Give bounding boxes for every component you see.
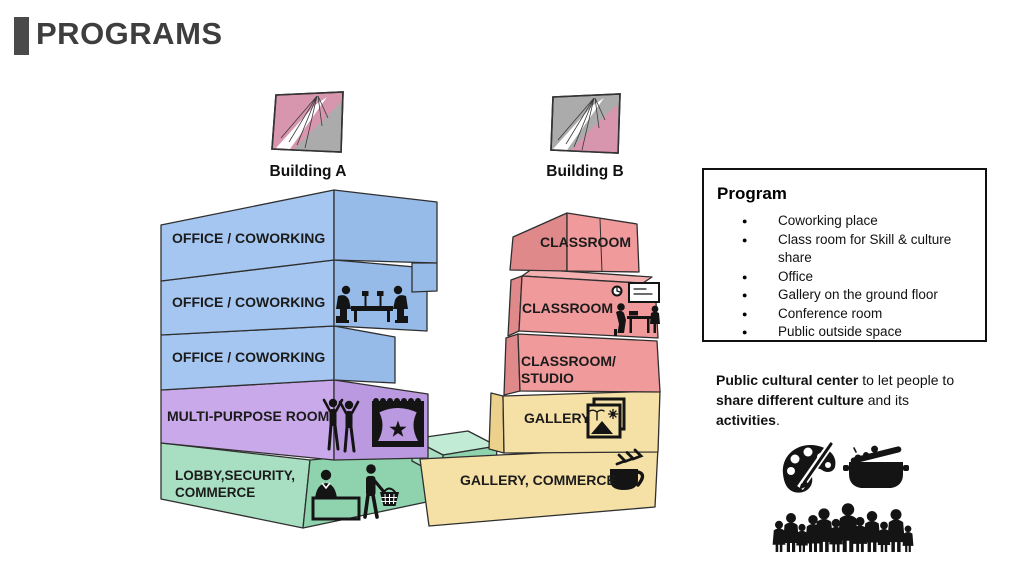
floor-label: OFFICE / COWORKING — [172, 349, 325, 365]
floor-label: LOBBY,SECURITY, — [175, 468, 295, 483]
list-item: ●Conference room — [742, 305, 977, 324]
bullet-icon: ● — [742, 268, 778, 287]
bullet-icon: ● — [742, 212, 778, 231]
stage-curtain-icon — [372, 398, 424, 447]
floor-label: OFFICE / COWORKING — [172, 294, 325, 310]
description-text: to let people to — [858, 372, 954, 388]
building-b-plan-icon — [551, 94, 620, 153]
floor-label: GALLERY, COMMERCE — [460, 472, 616, 488]
description-bold: share different culture — [716, 392, 864, 408]
floor-label: OFFICE / COWORKING — [172, 230, 325, 246]
program-box: Program ●Coworking place ●Class room for… — [702, 168, 987, 342]
floor-label: GALLERY — [524, 410, 591, 426]
list-item: ●Public outside space — [742, 323, 977, 342]
description-bold: Public cultural center — [716, 372, 858, 388]
building-a-label: Building A — [270, 163, 347, 180]
bullet-icon: ● — [742, 231, 778, 268]
description-text: . — [776, 412, 780, 428]
slide: PROGRAMS — [0, 0, 1024, 567]
floor-label: COMMERCE — [175, 485, 255, 500]
list-item: ●Class room for Skill & culture share — [742, 231, 977, 268]
cooking-pot-icon — [843, 439, 909, 488]
floor-label: STUDIO — [521, 370, 574, 386]
description-bold: activities — [716, 412, 776, 428]
floor-label: CLASSROOM — [540, 234, 631, 250]
floor-label: CLASSROOM — [522, 300, 613, 316]
bullet-icon: ● — [742, 305, 778, 324]
building-a-plan-icon — [272, 92, 343, 152]
description-text: and its — [864, 392, 909, 408]
building-b-label: Building B — [546, 163, 624, 180]
bullet-icon: ● — [742, 286, 778, 305]
floor-label: MULTI-PURPOSE ROOM — [167, 408, 329, 424]
list-item: ●Office — [742, 268, 977, 287]
bullet-icon: ● — [742, 323, 778, 342]
program-box-title: Program — [717, 184, 985, 204]
art-palette-icon — [783, 441, 836, 493]
list-item: ●Gallery on the ground floor — [742, 286, 977, 305]
crowd-icon — [773, 503, 914, 552]
gallery-picture-icon — [588, 399, 624, 437]
program-list: ●Coworking place ●Class room for Skill &… — [704, 212, 985, 342]
list-item: ●Coworking place — [742, 212, 977, 231]
floor-label: CLASSROOM/ — [521, 353, 616, 369]
description-paragraph: Public cultural center to let people to … — [716, 370, 968, 430]
building-b: CLASSROOM CLASSROOM CLASSROOM/ STUDIO GA… — [420, 213, 660, 526]
